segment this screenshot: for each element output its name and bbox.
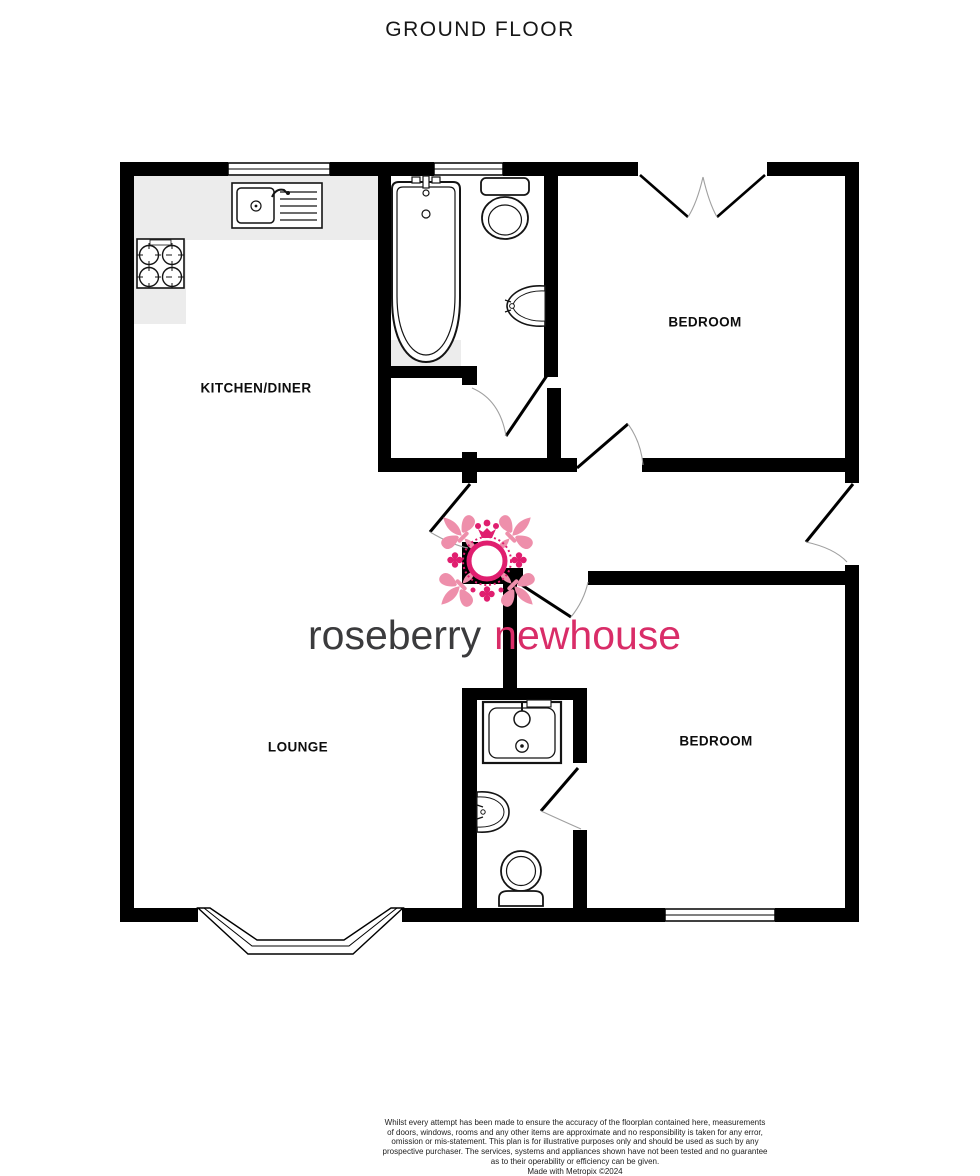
wash-basin-icon (505, 286, 545, 326)
brand-emblem-icon (426, 502, 547, 619)
kitchen-window (228, 163, 330, 175)
room-label-bedroom-bottom: BEDROOM (679, 734, 752, 749)
shower-room-door (541, 768, 581, 829)
bathroom-window (434, 163, 503, 175)
toilet-2-icon (499, 851, 543, 906)
disclaimer-line: Whilst every attempt has been made to en… (365, 1118, 785, 1128)
room-label-bedroom-top: BEDROOM (668, 315, 741, 330)
disclaimer: Whilst every attempt has been made to en… (365, 1118, 785, 1176)
kitchen-sink-icon (232, 183, 322, 228)
wash-basin-2-icon (477, 792, 509, 832)
disclaimer-credit: Made with Metropix ©2024 (365, 1167, 785, 1176)
brand-roseberry: roseberry (308, 612, 481, 658)
brand-wordmark: roseberrynewhouse (308, 615, 681, 656)
disclaimer-line: prospective purchaser. The services, sys… (365, 1147, 785, 1157)
bathroom-door (472, 374, 548, 436)
toilet-icon (481, 178, 529, 239)
shower-tray-icon (483, 700, 561, 763)
bedroom-window (665, 909, 775, 921)
disclaimer-line: omission or mis-statement. This plan is … (365, 1137, 785, 1147)
bay-window (198, 908, 403, 954)
bath-icon (392, 176, 460, 362)
french-doors (640, 175, 765, 217)
floorplan-drawing (0, 0, 980, 1176)
brand-newhouse: newhouse (494, 612, 681, 658)
room-label-kitchen-diner: KITCHEN/DINER (201, 381, 312, 396)
room-label-lounge: LOUNGE (268, 740, 328, 755)
entrance-door (806, 484, 853, 562)
hob-icon (137, 239, 184, 288)
bedroom-top-door (577, 424, 643, 468)
disclaimer-line: as to their operability or efficiency ca… (365, 1157, 785, 1167)
disclaimer-line: of doors, windows, rooms and any other i… (365, 1128, 785, 1138)
